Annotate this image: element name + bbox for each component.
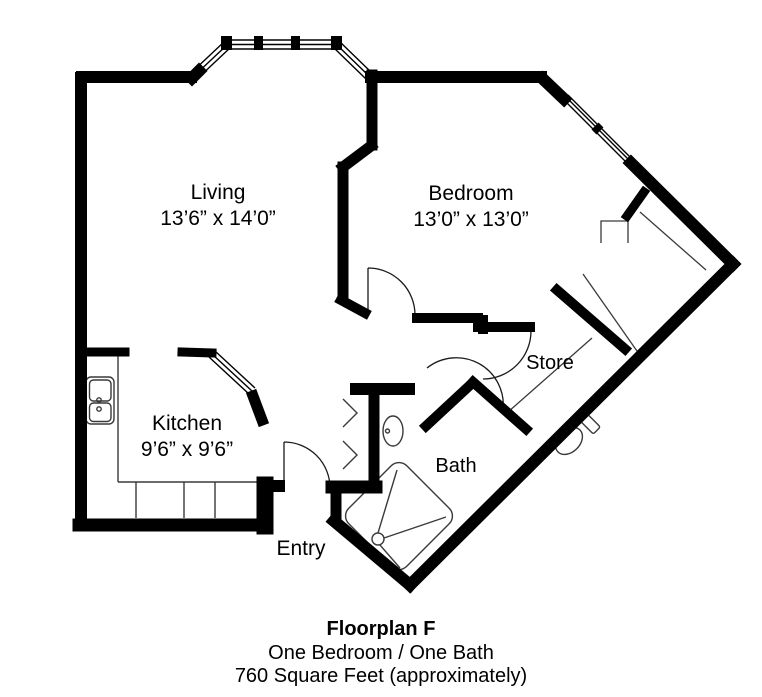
door-swings bbox=[284, 268, 531, 488]
wall-kitchen-wedge bbox=[253, 396, 262, 420]
wall-partition-end bbox=[341, 300, 365, 313]
caption-line2: One Bedroom / One Bath bbox=[0, 642, 762, 666]
wall-bath-sw bbox=[334, 521, 410, 585]
caption-line3: 760 Square Feet (approximately) bbox=[0, 665, 762, 689]
kitchen-label: Kitchen 9’6” x 9’6” bbox=[141, 411, 233, 463]
bedroom-dimensions: 13’0” x 13’0” bbox=[413, 207, 529, 233]
kitchen-dimensions: 9’6” x 9’6” bbox=[141, 437, 233, 463]
caption-title: Floorplan F bbox=[0, 618, 762, 642]
entry-door-arc bbox=[284, 442, 330, 488]
bathroom-sink-icon bbox=[383, 416, 403, 446]
kitchen-sink-icon bbox=[86, 377, 114, 424]
bay-window-icon bbox=[191, 40, 372, 79]
floorplan-drawing bbox=[0, 0, 762, 697]
living-room-name: Living bbox=[160, 180, 276, 206]
wall-bath-nw bbox=[426, 388, 467, 426]
hall-closet-bifold-icon bbox=[343, 399, 357, 469]
floorplan-page: Living 13’6” x 14’0” Bedroom 13’0” x 13’… bbox=[0, 0, 762, 697]
bedroom-door-arc bbox=[368, 268, 415, 315]
bay-window-mullions bbox=[221, 36, 342, 50]
wall-bath-store bbox=[473, 382, 526, 429]
living-room-label: Living 13’6” x 14’0” bbox=[160, 180, 276, 232]
store-label: Store bbox=[526, 350, 574, 376]
walls bbox=[79, 71, 733, 585]
bedroom-label: Bedroom 13’0” x 13’0” bbox=[413, 181, 529, 233]
bedroom-window-mullion bbox=[594, 125, 601, 132]
wall-bay-left-wedge bbox=[192, 71, 199, 78]
bedroom-name: Bedroom bbox=[413, 181, 529, 207]
wall-closet-stub bbox=[627, 192, 644, 216]
entry-label: Entry bbox=[276, 536, 325, 562]
wall-outer-se bbox=[410, 264, 733, 585]
wall-corner-ne bbox=[543, 79, 564, 99]
caption: Floorplan F One Bedroom / One Bath 760 S… bbox=[0, 618, 762, 689]
wall-kitchen-top-b bbox=[182, 352, 212, 353]
bath-label: Bath bbox=[435, 453, 476, 479]
kitchen-name: Kitchen bbox=[141, 411, 233, 437]
living-room-dimensions: 13’6” x 14’0” bbox=[160, 206, 276, 232]
